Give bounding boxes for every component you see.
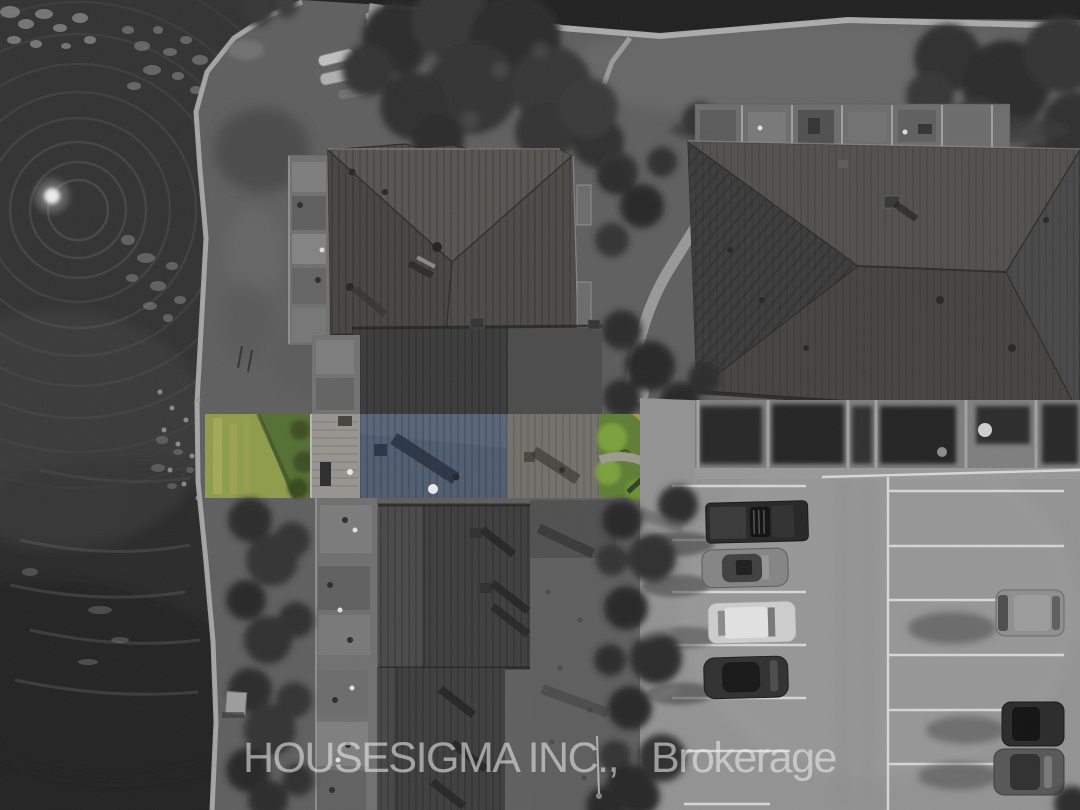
aerial-photo: HOUSESIGMA INC., Brokerage [0,0,1080,810]
subject-building-upper [312,318,602,414]
east-lower-roof [530,558,616,810]
bbq-grill [320,462,331,486]
fountain [35,179,69,213]
highlight-deck [310,414,360,498]
highlight-lawn [205,414,315,498]
highlight-roof-grey [507,414,600,498]
building-upper-left [288,144,591,345]
lower-townhouses [314,498,616,810]
parking-lot [635,398,1080,810]
highlight-band [205,414,685,501]
building-upper-right [688,104,1080,418]
patio-strip [695,400,1080,479]
aerial-photo-canvas [0,0,1080,810]
highlight-roof-blue [360,414,507,498]
lower-deck-column [314,498,377,810]
